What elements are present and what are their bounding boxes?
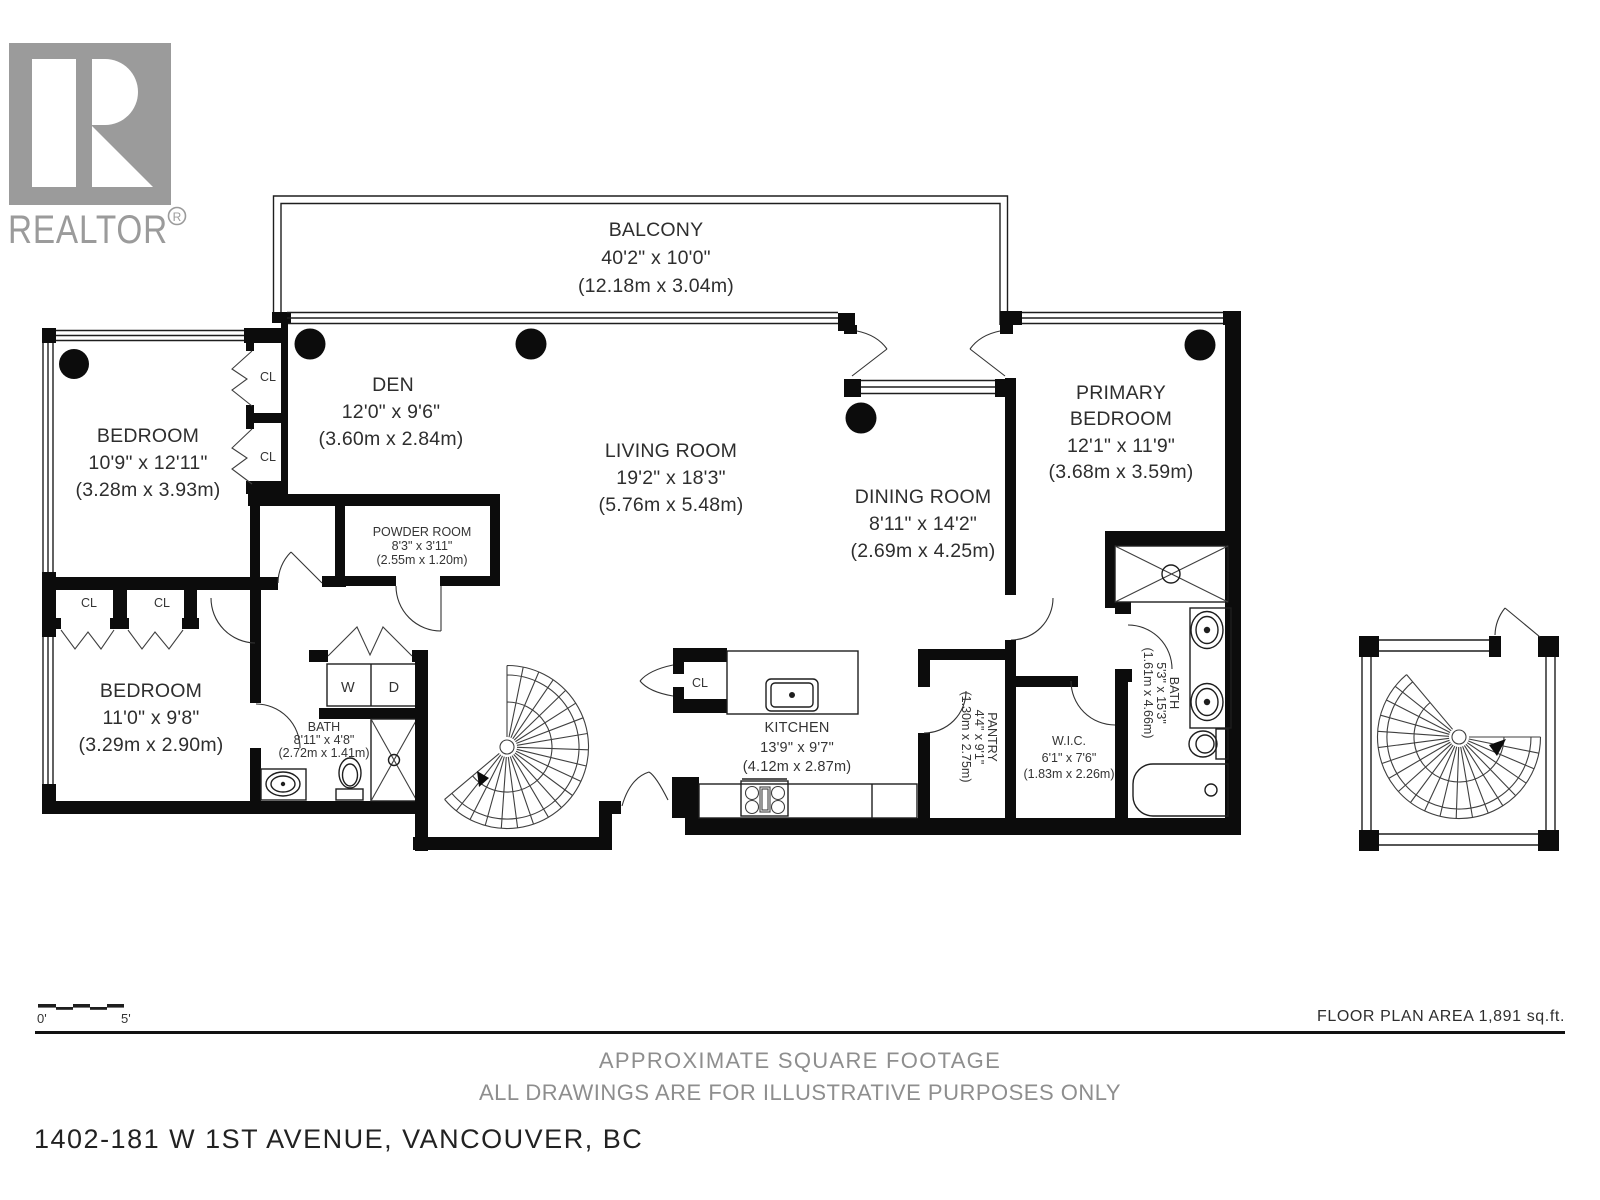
svg-text:R: R (173, 210, 182, 224)
svg-text:(2.55m x 1.20m): (2.55m x 1.20m) (376, 553, 467, 567)
svg-text:D: D (389, 680, 400, 696)
svg-text:(12.18m x 3.04m): (12.18m x 3.04m) (578, 275, 734, 297)
svg-text:FLOOR PLAN AREA 1,891 sq.ft.: FLOOR PLAN AREA 1,891 sq.ft. (1317, 1008, 1565, 1025)
svg-text:8'11" x 4'8": 8'11" x 4'8" (294, 733, 355, 747)
svg-text:13'9" x 9'7": 13'9" x 9'7" (760, 740, 834, 756)
svg-text:KITCHEN: KITCHEN (764, 720, 829, 736)
svg-text:W.I.C.: W.I.C. (1052, 734, 1086, 748)
svg-text:5'3" x 15'3": 5'3" x 15'3" (1154, 662, 1168, 724)
svg-text:CL: CL (154, 596, 170, 610)
svg-text:DINING ROOM: DINING ROOM (855, 486, 992, 508)
svg-text:0': 0' (37, 1011, 47, 1026)
svg-text:BALCONY: BALCONY (609, 219, 704, 241)
svg-text:(3.28m x 3.93m): (3.28m x 3.93m) (76, 479, 221, 501)
svg-text:(4.12m x 2.87m): (4.12m x 2.87m) (743, 759, 852, 775)
svg-text:REALTOR: REALTOR (8, 208, 168, 252)
svg-text:8'3" x 3'11": 8'3" x 3'11" (392, 539, 453, 553)
svg-text:CL: CL (260, 370, 276, 384)
svg-text:5': 5' (121, 1011, 131, 1026)
svg-text:LIVING ROOM: LIVING ROOM (605, 440, 737, 462)
svg-text:ALL DRAWINGS ARE FOR ILLUSTRAT: ALL DRAWINGS ARE FOR ILLUSTRATIVE PURPOS… (479, 1080, 1121, 1105)
svg-text:(3.68m x 3.59m): (3.68m x 3.59m) (1049, 461, 1194, 483)
svg-text:12'0" x 9'6": 12'0" x 9'6" (342, 401, 441, 423)
svg-text:CL: CL (260, 450, 276, 464)
svg-text:(2.72m x 1.41m): (2.72m x 1.41m) (278, 746, 369, 760)
svg-text:POWDER ROOM: POWDER ROOM (373, 525, 472, 539)
svg-text:(1.30m x 2.75m): (1.30m x 2.75m) (959, 691, 973, 782)
svg-text:(5.76m x 5.48m): (5.76m x 5.48m) (599, 494, 744, 516)
svg-text:6'1" x 7'6": 6'1" x 7'6" (1042, 751, 1097, 765)
svg-text:CL: CL (81, 596, 97, 610)
svg-text:1402-181 W 1ST AVENUE, VANCOUV: 1402-181 W 1ST AVENUE, VANCOUVER, BC (34, 1124, 643, 1154)
svg-text:19'2" x 18'3": 19'2" x 18'3" (616, 467, 726, 489)
svg-text:BATH: BATH (1167, 677, 1181, 709)
svg-text:BEDROOM: BEDROOM (1070, 408, 1172, 430)
svg-text:(1.83m x 2.26m): (1.83m x 2.26m) (1023, 767, 1114, 781)
svg-text:BATH: BATH (308, 720, 340, 734)
svg-text:(3.60m x 2.84m): (3.60m x 2.84m) (319, 428, 464, 450)
svg-text:PRIMARY: PRIMARY (1076, 382, 1166, 404)
svg-text:(2.69m x 4.25m): (2.69m x 4.25m) (851, 540, 996, 562)
svg-text:4'4" x 9'1": 4'4" x 9'1" (972, 710, 986, 765)
svg-text:W: W (341, 680, 355, 696)
svg-text:BEDROOM: BEDROOM (97, 425, 199, 447)
svg-text:12'1" x 11'9": 12'1" x 11'9" (1067, 435, 1175, 457)
svg-text:CL: CL (692, 676, 708, 690)
svg-text:11'0" x 9'8": 11'0" x 9'8" (102, 707, 199, 729)
svg-text:DEN: DEN (372, 374, 414, 396)
svg-text:10'9" x 12'11": 10'9" x 12'11" (88, 452, 207, 474)
svg-text:(1.61m x 4.66m): (1.61m x 4.66m) (1141, 647, 1155, 738)
svg-text:PANTRY: PANTRY (985, 712, 999, 762)
svg-text:8'11" x 14'2": 8'11" x 14'2" (869, 513, 977, 535)
svg-text:40'2" x 10'0": 40'2" x 10'0" (601, 247, 711, 269)
svg-text:BEDROOM: BEDROOM (100, 680, 202, 702)
svg-text:APPROXIMATE SQUARE FOOTAGE: APPROXIMATE SQUARE FOOTAGE (599, 1048, 1001, 1073)
svg-text:(3.29m x 2.90m): (3.29m x 2.90m) (79, 734, 224, 756)
